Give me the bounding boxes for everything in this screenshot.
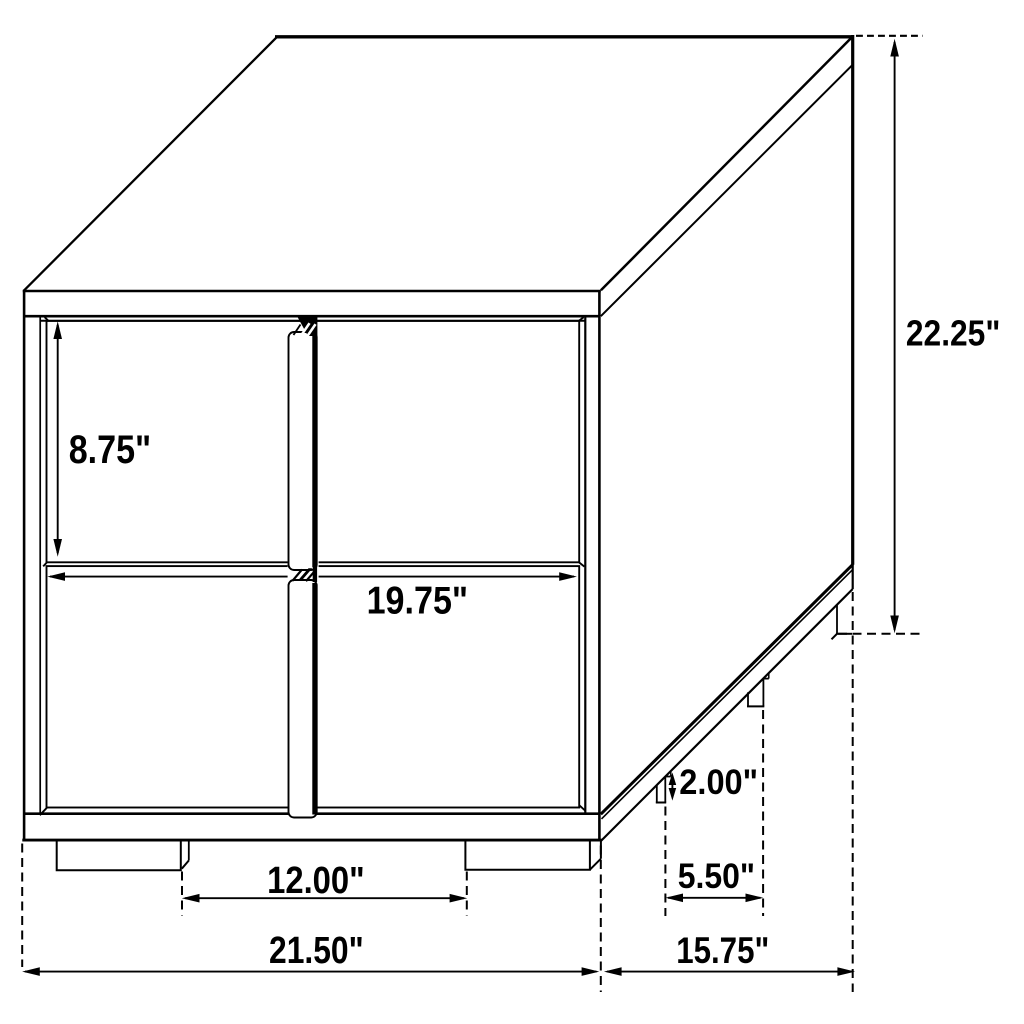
svg-text:2.00": 2.00" — [679, 763, 758, 802]
svg-text:8.75": 8.75" — [69, 428, 152, 472]
svg-text:15.75": 15.75" — [676, 929, 769, 971]
svg-text:5.50": 5.50" — [678, 857, 755, 896]
svg-text:22.25": 22.25" — [906, 312, 1001, 353]
svg-text:21.50": 21.50" — [269, 930, 364, 972]
svg-text:12.00": 12.00" — [267, 860, 365, 902]
svg-text:19.75": 19.75" — [367, 580, 469, 623]
